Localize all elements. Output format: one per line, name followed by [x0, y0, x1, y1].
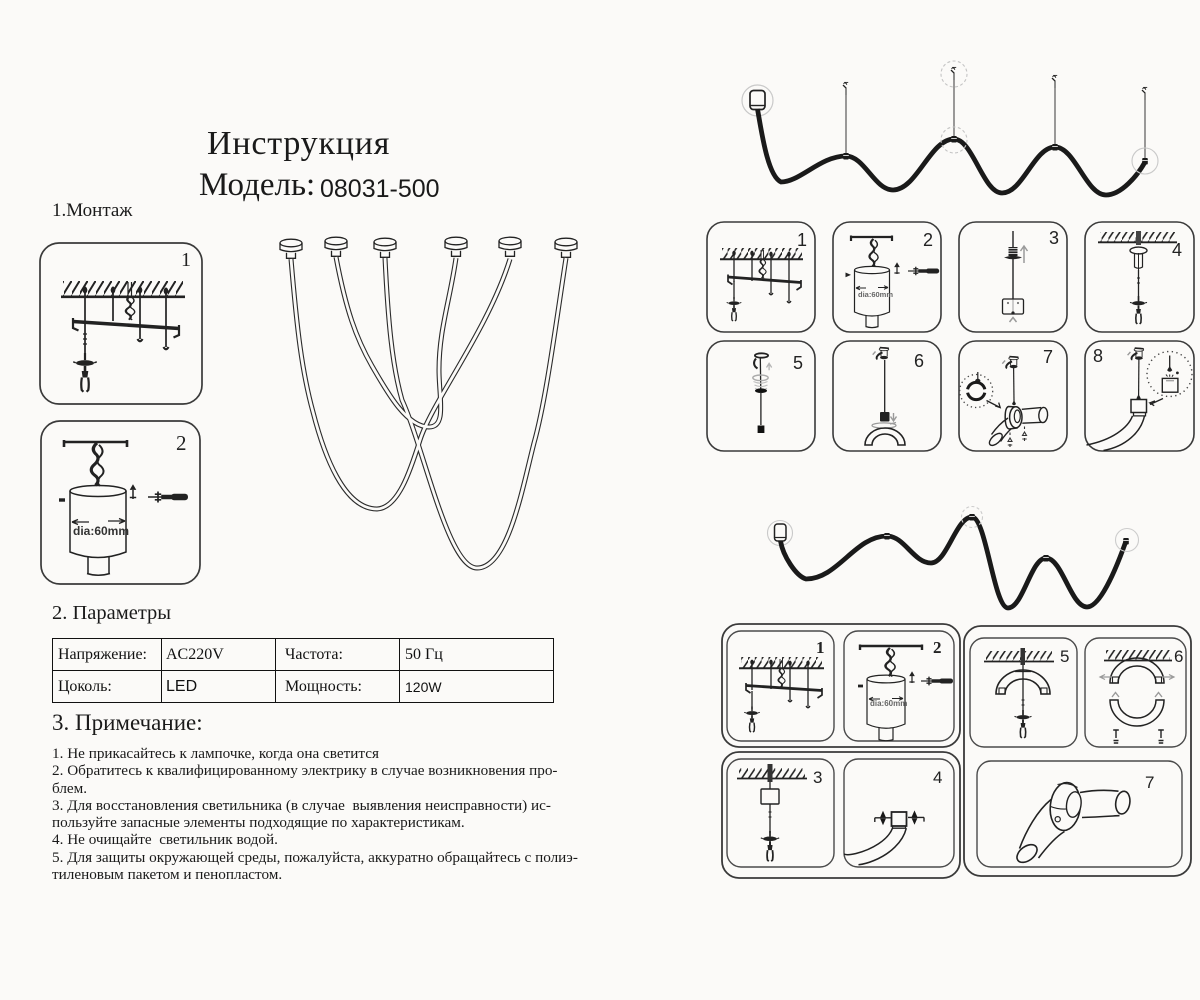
svg-text:3: 3 [813, 768, 822, 787]
svg-text:2: 2 [923, 230, 933, 250]
svg-text:6: 6 [1174, 647, 1183, 666]
svg-text:5: 5 [793, 353, 803, 373]
svg-text:1: 1 [181, 249, 191, 271]
svg-text:4: 4 [933, 768, 942, 787]
svg-text:dia:60mm: dia:60mm [73, 524, 129, 538]
svg-text:8: 8 [1093, 346, 1103, 366]
svg-text:dia:60mm: dia:60mm [870, 699, 907, 708]
svg-text:dia:60mm: dia:60mm [858, 290, 893, 299]
svg-text:1: 1 [816, 638, 825, 657]
svg-text:7: 7 [1145, 773, 1154, 792]
svg-text:1: 1 [797, 230, 807, 250]
svg-text:5: 5 [1060, 647, 1069, 666]
svg-text:7: 7 [1043, 347, 1053, 367]
svg-text:2: 2 [176, 431, 187, 455]
svg-text:6: 6 [914, 351, 924, 371]
svg-text:2: 2 [933, 638, 942, 657]
svg-text:3: 3 [1049, 228, 1059, 248]
